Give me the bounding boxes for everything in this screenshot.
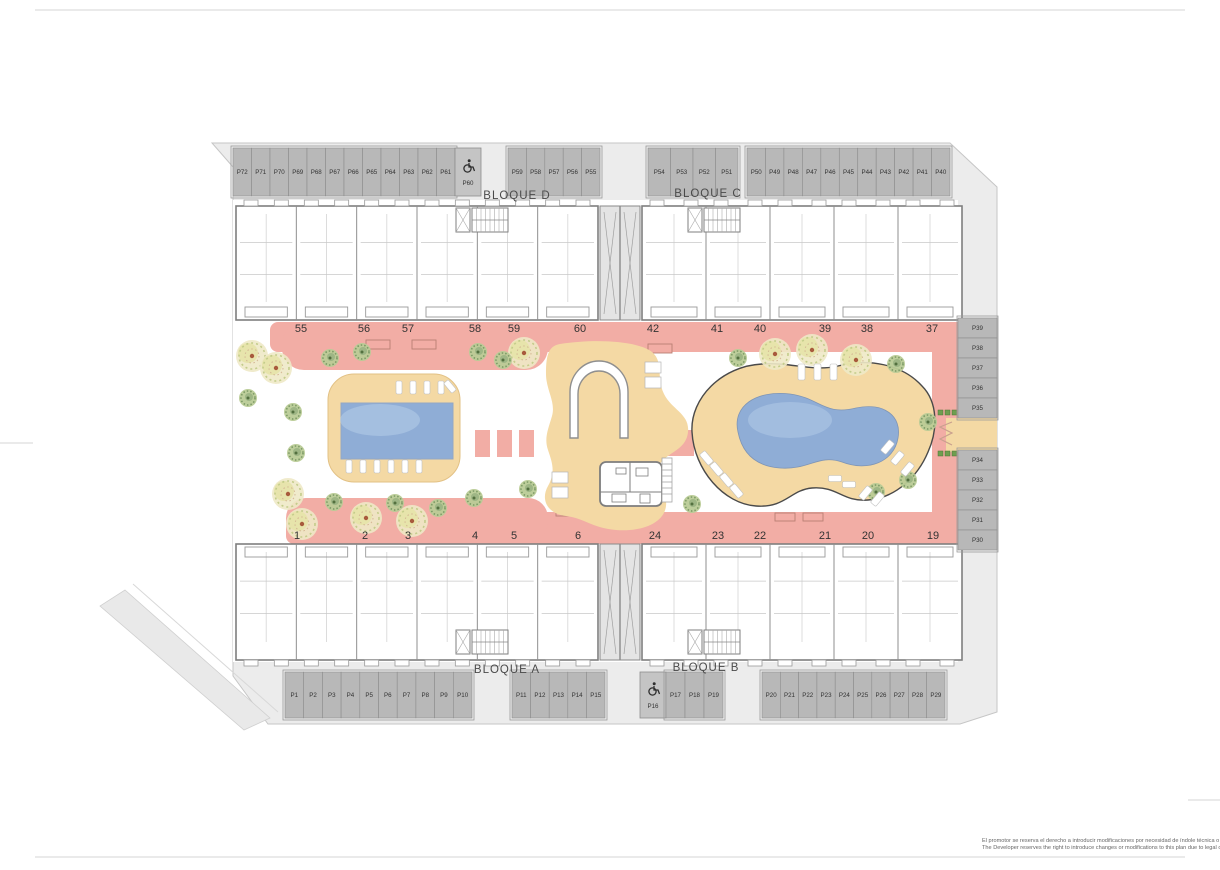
parking-stall-label: P55 <box>585 169 597 176</box>
unit-number: 4 <box>472 530 478 542</box>
parking-stall-label: P54 <box>654 169 666 176</box>
parking-stall-label: P42 <box>898 169 910 176</box>
tree-icon <box>796 334 828 366</box>
block-label-c: BLOQUE C <box>674 188 741 200</box>
parking-stall-label: P26 <box>875 692 887 699</box>
unit-number: 1 <box>294 530 300 542</box>
parking-stall-label: P61 <box>440 169 452 176</box>
unit-number: 22 <box>754 530 766 542</box>
stair-core <box>688 630 740 654</box>
parking-stall-label: P30 <box>972 537 984 544</box>
parking-stall-label: P28 <box>912 692 924 699</box>
unit-number: 57 <box>402 323 414 335</box>
unit-number: 21 <box>819 530 831 542</box>
parking-stall-label: P11 <box>516 692 527 699</box>
unit-number: 40 <box>754 323 766 335</box>
sun-lounger <box>374 460 380 473</box>
unit-number: 41 <box>711 323 723 335</box>
parking-stall-label: P38 <box>972 345 984 352</box>
block-label-d: BLOQUE D <box>483 190 550 202</box>
sun-lounger <box>396 381 402 394</box>
stair-core <box>456 630 508 654</box>
parking-stall-label: P16 <box>647 703 659 710</box>
unit-number: 59 <box>508 323 520 335</box>
parking-stall-label: P59 <box>512 169 524 176</box>
parking-stall-label: P21 <box>784 692 796 699</box>
parking-stall-label: P3 <box>328 692 336 699</box>
unit-number: 55 <box>295 323 307 335</box>
bush-icon <box>494 351 512 369</box>
parking-stall-label: P9 <box>440 692 448 699</box>
parking-stall-label: P34 <box>972 457 984 464</box>
tree-icon <box>260 352 292 384</box>
parking-stall-label: P36 <box>972 385 984 392</box>
bush-icon <box>469 343 487 361</box>
sun-lounger <box>416 460 422 473</box>
parking-stall-label: P51 <box>721 169 733 176</box>
parking-stall-label: P29 <box>930 692 942 699</box>
stair-core <box>456 208 508 232</box>
parking-stall-label: P46 <box>825 169 837 176</box>
sun-lounger <box>830 364 837 380</box>
unit-number: 37 <box>926 323 938 335</box>
unit-number: 56 <box>358 323 370 335</box>
parking-group-top-right: P50P49P48P47P46P45P44P43P42P41P40 <box>745 146 952 198</box>
bush-icon <box>287 444 305 462</box>
parking-stall-label: P52 <box>699 169 711 176</box>
tree-icon <box>272 478 304 510</box>
parking-group-right-lower: P34P33P32P31P30 <box>957 448 998 552</box>
sun-lounger <box>814 364 821 380</box>
parking-stall-disabled-p16: P16 <box>640 672 666 718</box>
parking-group-right-upper: P39P38P37P36P35 <box>957 316 998 420</box>
parking-stall-label: P7 <box>403 692 411 699</box>
parking-stall-label: P58 <box>530 169 542 176</box>
bush-icon <box>239 389 257 407</box>
parking-stall-label: P68 <box>311 169 323 176</box>
bush-icon <box>683 495 701 513</box>
sun-lounger <box>843 482 856 488</box>
parking-group-bottom-mid-b: P17P18P19 <box>664 670 725 720</box>
stair-core <box>688 208 740 232</box>
tree-icon <box>508 337 540 369</box>
tree-icon <box>759 338 791 370</box>
bush-icon <box>284 403 302 421</box>
unit-number: 19 <box>927 530 939 542</box>
parking-stall-label: P1 <box>291 692 299 699</box>
parking-stall-label: P41 <box>917 169 929 176</box>
parking-stall-label: P2 <box>309 692 317 699</box>
bush-icon <box>519 480 537 498</box>
sun-lounger <box>424 381 430 394</box>
parking-group-bottom-left: P1P2P3P4P5P6P7P8P9P10 <box>283 670 474 720</box>
sun-lounger <box>829 476 842 482</box>
bush-icon <box>887 355 905 373</box>
unit-number: 23 <box>712 530 724 542</box>
parking-stall-label: P65 <box>366 169 378 176</box>
parking-group-bottom-mid-a: P11P12P13P14P15 <box>510 670 607 720</box>
parking-stall-label: P43 <box>880 169 892 176</box>
parking-group-top-left: P72P71P70P69P68P67P66P65P64P63P62P61 <box>231 146 457 198</box>
bush-icon <box>919 413 937 431</box>
bush-icon <box>429 499 447 517</box>
sun-lounger <box>360 460 366 473</box>
unit-number: 38 <box>861 323 873 335</box>
tree-icon <box>840 344 872 376</box>
pavilion <box>600 462 662 506</box>
parking-stall-label: P48 <box>788 169 800 176</box>
parking-stall-label: P56 <box>567 169 579 176</box>
parking-stall-label: P37 <box>972 365 984 372</box>
bush-icon <box>321 349 339 367</box>
bush-icon <box>325 493 343 511</box>
site-plan: P72P71P70P69P68P67P66P65P64P63P62P61P60P… <box>0 0 1220 870</box>
parking-stall-label: P47 <box>806 169 818 176</box>
parking-stall-label: P45 <box>843 169 855 176</box>
bush-icon <box>465 489 483 507</box>
parking-stall-label: P19 <box>708 692 720 699</box>
unit-number: 3 <box>405 530 411 542</box>
parking-stall-label: P60 <box>462 180 474 187</box>
ramp-corridor <box>600 206 640 320</box>
parking-stall-label: P70 <box>274 169 286 176</box>
unit-number: 20 <box>862 530 874 542</box>
tree-icon <box>286 508 318 540</box>
unit-number: 6 <box>575 530 581 542</box>
parking-stall-label: P10 <box>457 692 469 699</box>
parking-stall-label: P15 <box>590 692 602 699</box>
parking-stall-disabled-p60: P60 <box>455 148 481 196</box>
block-label-a: BLOQUE A <box>474 664 540 676</box>
block-label-b: BLOQUE B <box>673 662 740 674</box>
parking-stall-label: P49 <box>769 169 781 176</box>
unit-number: 5 <box>511 530 517 542</box>
parking-stall-label: P44 <box>861 169 873 176</box>
parking-stall-label: P27 <box>894 692 906 699</box>
parking-stall-label: P40 <box>935 169 947 176</box>
sun-lounger <box>388 460 394 473</box>
parking-stall-label: P24 <box>839 692 851 699</box>
unit-number: 42 <box>647 323 659 335</box>
bush-icon <box>386 494 404 512</box>
parking-stall-label: P72 <box>237 169 249 176</box>
legal-disclaimer: El promotor se reserva el derecho a intr… <box>982 838 1220 852</box>
parking-stall-label: P13 <box>553 692 565 699</box>
parking-stall-label: P33 <box>972 477 984 484</box>
parking-stall-label: P50 <box>751 169 763 176</box>
parking-stall-label: P14 <box>572 692 584 699</box>
sun-lounger <box>402 460 408 473</box>
parking-stall-label: P39 <box>972 325 984 332</box>
parking-stall-label: P57 <box>548 169 560 176</box>
sun-lounger <box>410 381 416 394</box>
unit-number: 60 <box>574 323 586 335</box>
legal-disclaimer-en: The Developer reserves the right to intr… <box>982 845 1220 852</box>
parking-stall-label: P67 <box>329 169 341 176</box>
parking-stall-label: P6 <box>384 692 392 699</box>
apartment-block <box>236 200 598 320</box>
parking-stall-label: P31 <box>972 517 984 524</box>
sun-lounger <box>438 381 444 394</box>
parking-stall-label: P4 <box>347 692 355 699</box>
parking-stall-label: P66 <box>348 169 360 176</box>
sun-lounger <box>798 364 805 380</box>
unit-number: 24 <box>649 530 661 542</box>
parking-stall-label: P8 <box>421 692 429 699</box>
sun-lounger <box>346 460 352 473</box>
parking-stall-label: P22 <box>802 692 814 699</box>
apartment-block <box>236 544 598 666</box>
parking-stall-label: P62 <box>422 169 434 176</box>
unit-number: 2 <box>362 530 368 542</box>
unit-number: 39 <box>819 323 831 335</box>
parking-stall-label: P71 <box>255 169 267 176</box>
parking-stall-label: P63 <box>403 169 415 176</box>
parking-stall-label: P17 <box>670 692 682 699</box>
pergola <box>662 458 672 502</box>
parking-stall-label: P53 <box>676 169 688 176</box>
parking-stall-label: P69 <box>292 169 304 176</box>
parking-stall-label: P5 <box>365 692 373 699</box>
parking-stall-label: P12 <box>534 692 546 699</box>
parking-stall-label: P32 <box>972 497 984 504</box>
bush-icon <box>729 349 747 367</box>
parking-group-bottom-right: P20P21P22P23P24P25P26P27P28P29 <box>760 670 947 720</box>
parking-stall-label: P25 <box>857 692 869 699</box>
parking-stall-label: P18 <box>689 692 701 699</box>
unit-number: 58 <box>469 323 481 335</box>
legal-disclaimer-es: El promotor se reserva el derecho a intr… <box>982 838 1220 845</box>
parking-stall-label: P23 <box>821 692 833 699</box>
ramp-corridor <box>600 544 640 660</box>
bush-icon <box>353 343 371 361</box>
parking-stall-label: P20 <box>766 692 778 699</box>
parking-stall-label: P35 <box>972 405 984 412</box>
parking-stall-label: P64 <box>385 169 397 176</box>
